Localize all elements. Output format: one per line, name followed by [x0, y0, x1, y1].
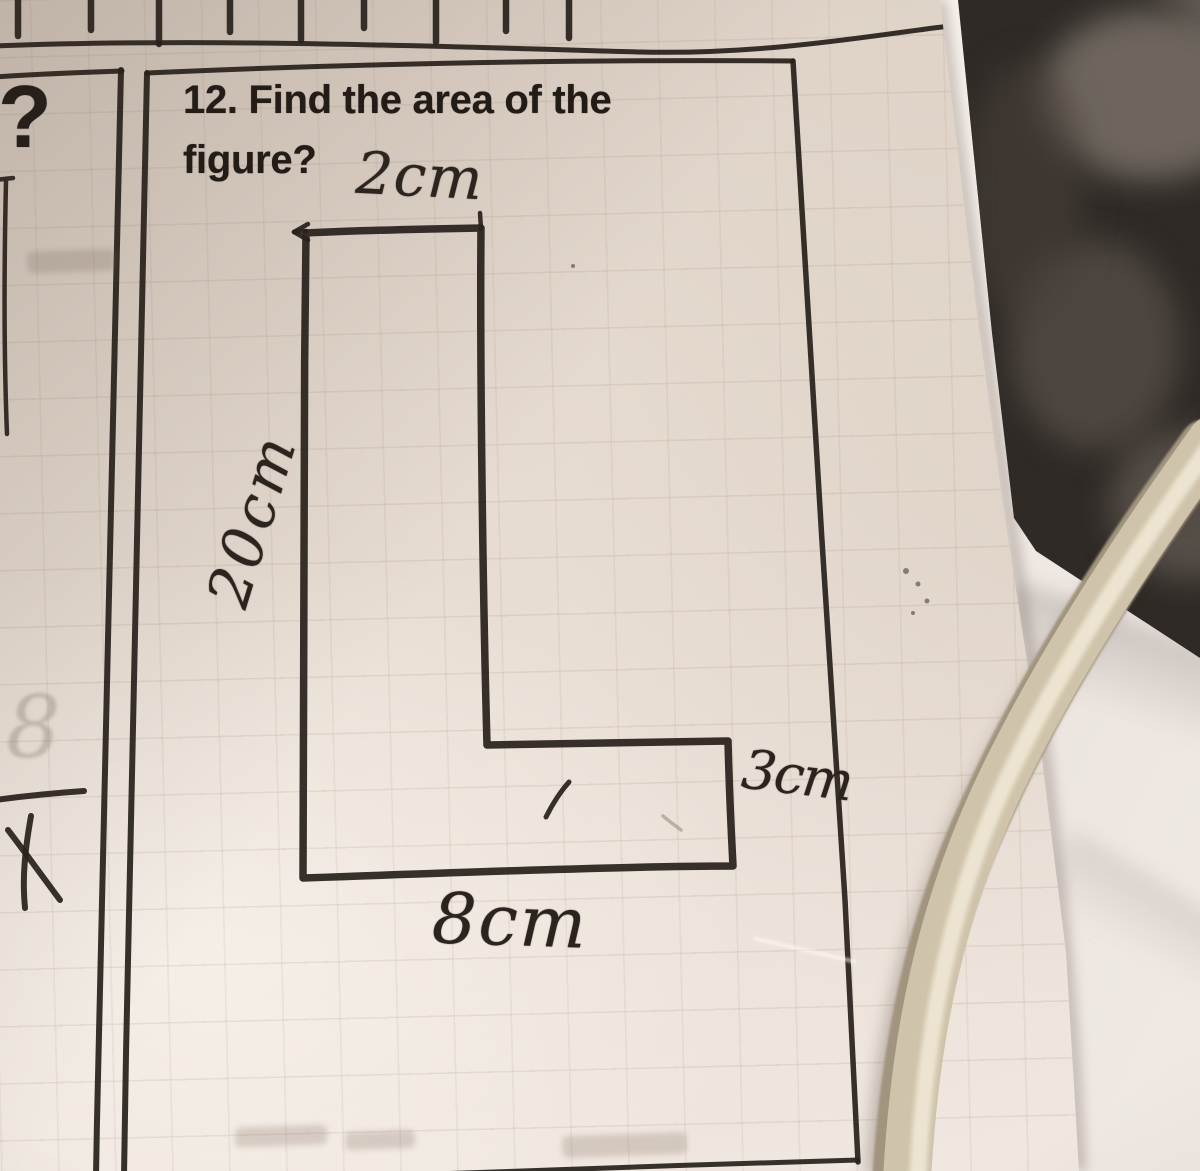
charging-cable	[0, 0, 1200, 1171]
worksheet-photo: 12. Find the area of the figure? ? 2cm 2…	[0, 0, 1200, 1171]
